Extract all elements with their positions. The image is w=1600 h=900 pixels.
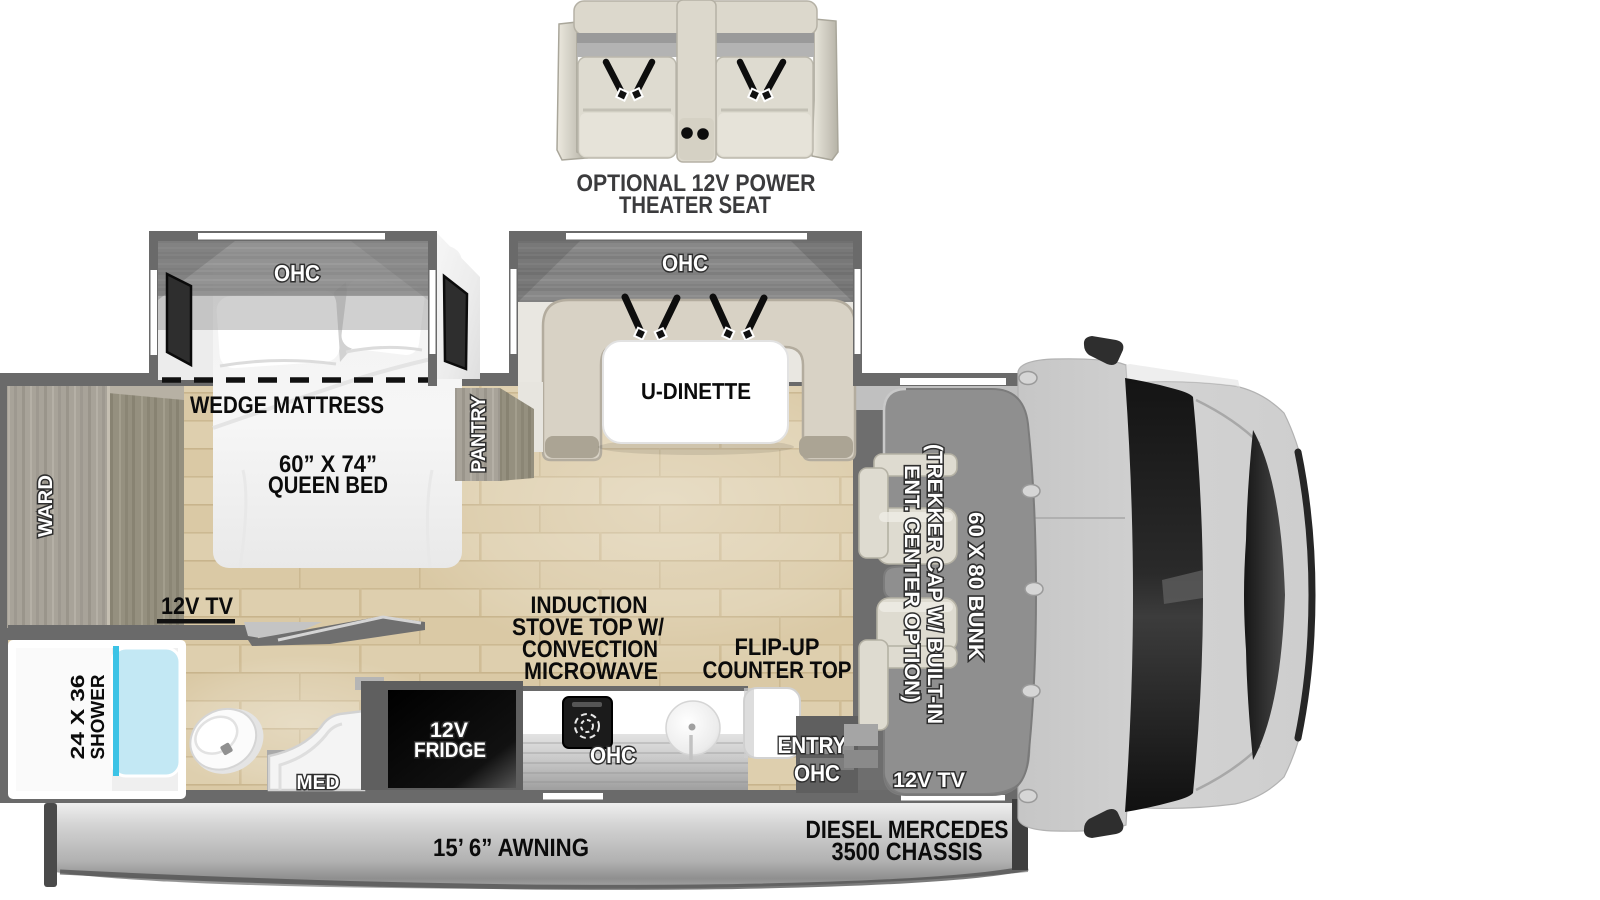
svg-text:ENTRY: ENTRY	[778, 732, 847, 758]
svg-text:MED: MED	[297, 772, 340, 794]
svg-text:12V TV: 12V TV	[893, 769, 965, 792]
svg-text:12V TV: 12V TV	[161, 593, 233, 620]
svg-text:15’ 6” AWNING: 15’ 6” AWNING	[433, 834, 589, 862]
svg-text:OHC: OHC	[662, 250, 708, 276]
svg-text:OHC: OHC	[274, 260, 320, 286]
svg-text:(TREKKER CAP W/ BUILT-IN: (TREKKER CAP W/ BUILT-IN	[923, 444, 946, 724]
svg-text:60 X 80 BUNK: 60 X 80 BUNK	[964, 512, 987, 660]
svg-text:OHC: OHC	[794, 760, 840, 786]
svg-text:COUNTER TOP: COUNTER TOP	[703, 657, 852, 684]
svg-text:PANTRY: PANTRY	[468, 395, 490, 473]
svg-text:WEDGE MATTRESS: WEDGE MATTRESS	[190, 392, 384, 419]
svg-text:24 X 36: 24 X 36	[68, 675, 89, 760]
svg-text:SHOWER: SHOWER	[88, 674, 109, 759]
svg-text:WARD: WARD	[35, 475, 57, 537]
svg-text:FRIDGE: FRIDGE	[414, 739, 486, 762]
svg-text:U-DINETTE: U-DINETTE	[641, 378, 751, 404]
svg-text:MICROWAVE: MICROWAVE	[524, 658, 658, 685]
svg-text:QUEEN BED: QUEEN BED	[268, 472, 388, 499]
svg-text:OHC: OHC	[590, 742, 636, 768]
svg-text:3500 CHASSIS: 3500 CHASSIS	[832, 838, 983, 866]
svg-text:THEATER SEAT: THEATER SEAT	[619, 192, 771, 219]
svg-text:ENT. CENTER OPTION): ENT. CENTER OPTION)	[900, 465, 923, 703]
